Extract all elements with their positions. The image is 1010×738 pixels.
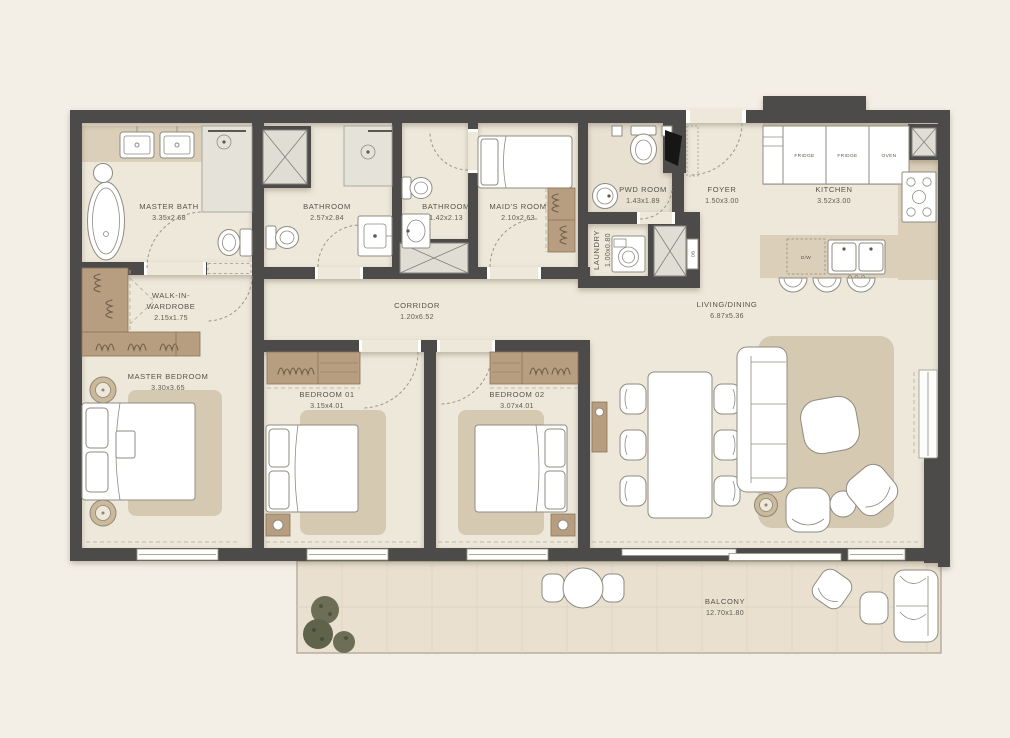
- db-panel-label: DB: [691, 251, 696, 257]
- db-panel: DB: [687, 239, 698, 269]
- shaft-icon: [654, 226, 686, 276]
- label-bathroom-main: BATHROOM: [303, 202, 351, 211]
- sink: [402, 214, 430, 248]
- wardrobe: [267, 352, 360, 388]
- window: [919, 370, 937, 458]
- single-bed: [478, 136, 572, 188]
- dims-living-dining: 6.87x5.36: [710, 312, 744, 320]
- window: [307, 549, 388, 560]
- label-pwd-room: PWD ROOM: [619, 185, 667, 194]
- fridge: FRIDGE: [826, 126, 869, 184]
- armchair: [786, 488, 830, 532]
- shaft-icon: [263, 130, 307, 184]
- shower: [344, 126, 392, 186]
- dims-bathroom-main: 2.57x2.84: [310, 214, 344, 222]
- fridge: FRIDGE: [783, 126, 826, 184]
- dims-bedroom-02: 3.07x4.01: [500, 402, 534, 410]
- label-laundry: LAUNDRY: [592, 230, 601, 270]
- label-walk-in-1: WALK-IN-: [152, 291, 190, 300]
- washing-machine: [612, 236, 645, 272]
- dining-table: [648, 372, 712, 518]
- room-bedroom-01: [266, 352, 360, 536]
- label-bedroom-02: BEDROOM 02: [489, 390, 544, 399]
- dishwasher-label: D/W: [801, 255, 811, 261]
- window: [137, 549, 218, 560]
- floor-plan: DB: [0, 0, 1010, 738]
- nightstand: [266, 514, 290, 536]
- double-bed: [475, 425, 567, 512]
- dims-corridor: 1.20x6.52: [400, 313, 434, 321]
- dims-bathroom-small: 1.42x2.13: [429, 214, 463, 222]
- label-kitchen: KITCHEN: [815, 185, 852, 194]
- tv-console: [592, 402, 607, 452]
- label-foyer: FOYER: [708, 185, 737, 194]
- label-master-bath: MASTER BATH: [139, 202, 199, 211]
- toilet: [218, 229, 252, 256]
- label-master-bedroom: MASTER BEDROOM: [128, 372, 209, 381]
- dims-walk-in: 2.15x1.75: [154, 314, 188, 322]
- sink-vanity: [358, 216, 392, 256]
- fridge-label: FRIDGE: [794, 153, 814, 159]
- cooktop: [902, 172, 936, 222]
- round-basin: [593, 184, 618, 209]
- window: [467, 549, 548, 560]
- label-balcony: BALCONY: [705, 597, 745, 606]
- label-bathroom-small: BATHROOM: [422, 202, 470, 211]
- dims-balcony: 12.70x1.80: [706, 609, 744, 617]
- dims-foyer: 1.50x3.00: [705, 197, 739, 205]
- outdoor-ottoman: [860, 592, 888, 624]
- toilet: [402, 177, 432, 199]
- dims-bedroom-01: 3.15x4.01: [310, 402, 344, 410]
- nightstand: [551, 514, 575, 536]
- label-maids-room: MAID'S ROOM: [489, 202, 546, 211]
- tall-cabinet: [763, 126, 783, 184]
- label-bedroom-01: BEDROOM 01: [299, 390, 354, 399]
- toilet: [266, 226, 299, 249]
- sofa: [737, 347, 787, 492]
- double-bed: [266, 425, 358, 512]
- bar-stools: [779, 278, 875, 292]
- side-table: [90, 377, 116, 403]
- double-bed: [82, 403, 195, 500]
- label-corridor: CORRIDOR: [394, 301, 440, 310]
- label-living-dining: LIVING/DINING: [697, 300, 758, 309]
- side-table: [90, 500, 116, 526]
- shower: [202, 126, 252, 212]
- dims-kitchen: 3.52x3.00: [817, 197, 851, 205]
- dims-master-bath: 3.35x2.68: [152, 214, 186, 222]
- wardrobe: [546, 188, 575, 252]
- dims-laundry: 1.00x0.80: [604, 233, 612, 267]
- dims-pwd-room: 1.43x1.89: [626, 197, 660, 205]
- oven-label: OVEN: [882, 153, 897, 159]
- label-walk-in-2: WARDROBE: [147, 302, 196, 311]
- floor-plan-page: DB: [0, 0, 1010, 738]
- island-sink: [828, 240, 885, 279]
- fridge-label: FRIDGE: [837, 153, 857, 159]
- room-laundry: [612, 236, 645, 272]
- outdoor-table-set: [542, 568, 624, 608]
- window: [848, 549, 905, 560]
- shaft-icon: [912, 128, 936, 156]
- wardrobe: [490, 352, 578, 388]
- side-table: [755, 494, 778, 517]
- outdoor-loveseat: [894, 570, 938, 642]
- dims-maids-room: 2.10x2.63: [501, 214, 535, 222]
- dims-master-bedroom: 3.30x3.65: [151, 384, 185, 392]
